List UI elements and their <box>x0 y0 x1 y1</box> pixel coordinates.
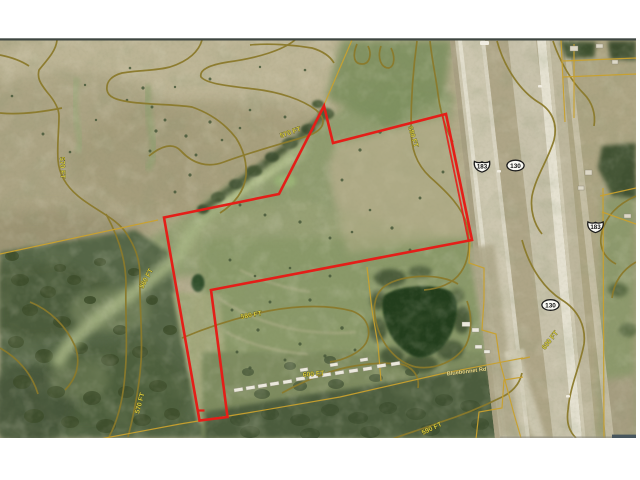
svg-text:183: 183 <box>477 163 488 170</box>
svg-text:130: 130 <box>545 302 556 309</box>
svg-text:570 FT: 570 FT <box>58 157 66 180</box>
svg-text:183: 183 <box>590 224 601 231</box>
svg-text:130: 130 <box>510 163 521 170</box>
